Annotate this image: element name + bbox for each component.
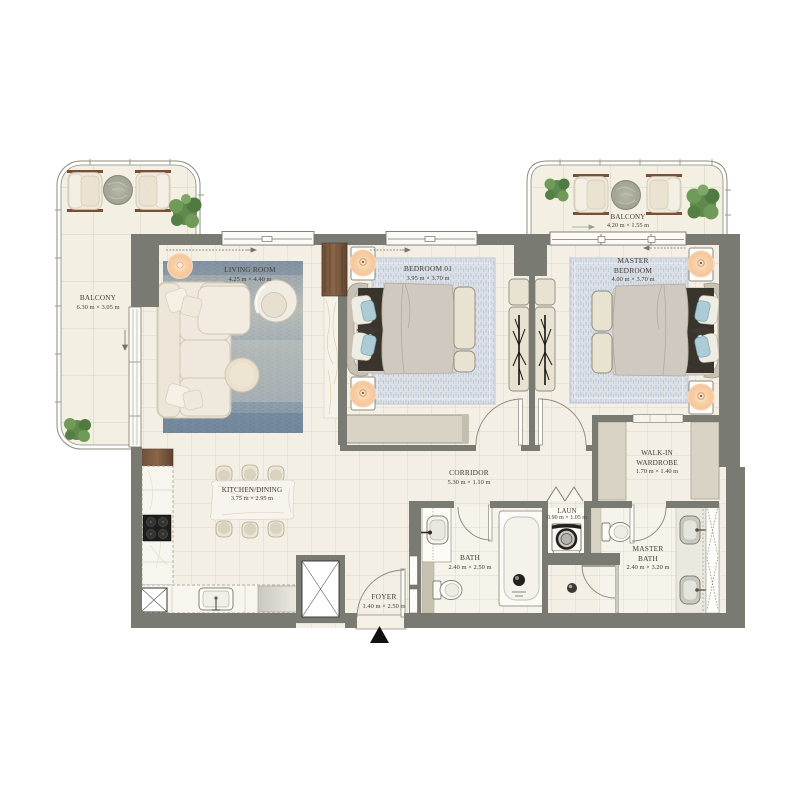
svg-text:MASTER: MASTER	[617, 256, 648, 265]
svg-text:WARDROBE: WARDROBE	[636, 459, 678, 467]
svg-text:3.95 m × 3.70 m: 3.95 m × 3.70 m	[406, 275, 449, 282]
svg-text:FOYER: FOYER	[371, 592, 396, 601]
svg-text:KITCHEN/DINING: KITCHEN/DINING	[222, 486, 283, 494]
svg-text:MASTER: MASTER	[633, 544, 664, 553]
svg-text:BALCONY: BALCONY	[80, 294, 117, 302]
svg-text:6.30 m × 3.05 m: 6.30 m × 3.05 m	[76, 304, 119, 311]
svg-text:BEDROOM: BEDROOM	[614, 266, 653, 275]
svg-text:2.40 m × 3.20 m: 2.40 m × 3.20 m	[626, 564, 669, 571]
svg-text:BEDROOM 01: BEDROOM 01	[404, 264, 452, 273]
svg-text:4.20 m × 1.55 m: 4.20 m × 1.55 m	[607, 222, 649, 229]
svg-text:BALCONY: BALCONY	[611, 213, 646, 221]
svg-text:2.40 m × 2.50 m: 2.40 m × 2.50 m	[448, 564, 491, 571]
svg-text:1.40 m × 2.50 m: 1.40 m × 2.50 m	[362, 603, 405, 610]
svg-text:LIVING ROOM: LIVING ROOM	[224, 265, 276, 274]
svg-text:CORRIDOR: CORRIDOR	[449, 468, 489, 477]
svg-text:5.30 m × 1.10 m: 5.30 m × 1.10 m	[447, 479, 490, 486]
svg-text:3.75 m × 2.95 m: 3.75 m × 2.95 m	[231, 495, 273, 502]
svg-text:WALK-IN: WALK-IN	[641, 449, 673, 457]
svg-text:BATH: BATH	[638, 554, 658, 563]
svg-text:LAUN: LAUN	[557, 508, 576, 515]
svg-text:4.00 m × 3.70 m: 4.00 m × 3.70 m	[611, 276, 654, 283]
svg-text:4.25 m × 4.40 m: 4.25 m × 4.40 m	[228, 276, 271, 283]
svg-text:BATH: BATH	[460, 553, 481, 562]
svg-text:1.70 m × 1.40 m: 1.70 m × 1.40 m	[636, 468, 678, 475]
svg-text:0.90 m × 1.05 m: 0.90 m × 1.05 m	[547, 515, 587, 521]
